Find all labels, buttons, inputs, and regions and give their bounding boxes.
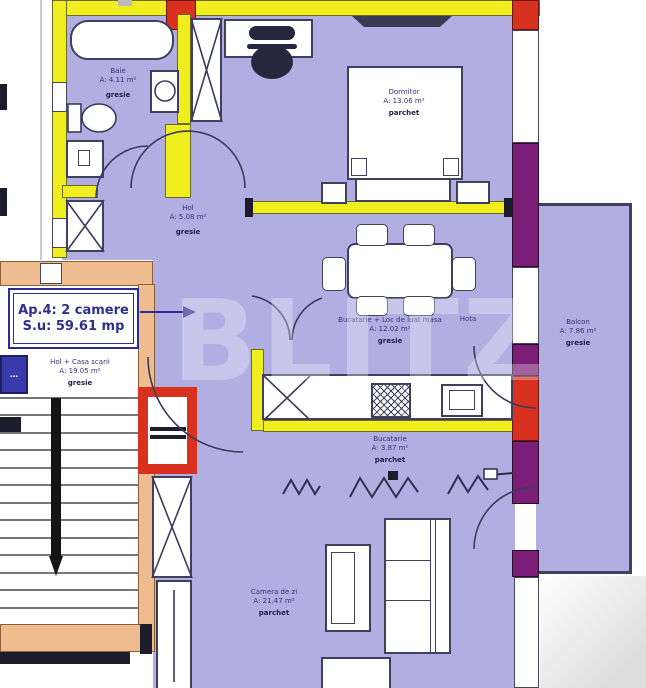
room-area: A: 4.11 m² (100, 76, 137, 85)
room-name: Camera de zi (251, 588, 297, 597)
toilet-icon (82, 104, 116, 132)
room-name: Baie (110, 67, 125, 76)
room-name: Bucatarie (373, 435, 407, 444)
door-arc-icon (252, 296, 290, 340)
room-name: Dormitor (388, 88, 419, 97)
stairs-icon (0, 398, 138, 608)
washer-drum (155, 81, 175, 101)
room-label-bucatarie: Bucatarie A: 3.87 m² parchet (352, 435, 428, 465)
toilet-tank (68, 104, 81, 132)
adjacent-apartment-label: … (0, 355, 28, 394)
room-label-dormitor: Dormitor A: 13.06 m² parchet (364, 88, 444, 118)
adjacent-apartment-text: … (10, 370, 18, 379)
room-area: A: 12.02 m² (369, 325, 410, 334)
door-arc-icon (474, 346, 536, 408)
room-label-bucatarie-dining: Bucatarie + Loc de luat masa A: 12.02 m²… (328, 316, 452, 346)
room-area: A: 5.08 m² (170, 213, 207, 222)
room-name: Balcon (566, 318, 590, 327)
door-arc-icon (131, 131, 245, 188)
room-name: Hol (182, 204, 194, 213)
shaft-x-lines (191, 18, 222, 122)
room-area: A: 3.87 m² (372, 444, 409, 453)
room-area: A: 7.86 m² (560, 327, 597, 336)
room-label-baie: Baie A: 4.11 m² gresie (88, 67, 148, 100)
shaft-x-lines (152, 476, 192, 578)
room-label-hol: Hol A: 5.08 m² gresie (158, 204, 218, 237)
office-chair-icon (247, 26, 297, 79)
room-area: A: 19.05 m² (59, 367, 100, 376)
room-label-casa-scarii: Hol + Casa scarii A: 19.05 m² gresie (28, 358, 132, 388)
radiator-valve (484, 469, 497, 479)
room-floor: gresie (68, 379, 93, 388)
room-label-balcon: Balcon A: 7.86 m² gresie (548, 318, 608, 348)
room-area: A: 21.47 m² (253, 597, 294, 606)
sink-x-lines (264, 376, 310, 420)
apartment-pointer-arrow (140, 306, 196, 318)
apartment-title-line1: Ap.4: 2 camere (18, 303, 129, 319)
shaft-x-lines (66, 200, 104, 252)
room-floor: gresie (106, 91, 131, 100)
floor-plan-canvas: Baie A: 4.11 m² gresie Dormitor A: 13.06… (0, 0, 646, 688)
room-area: A: 13.06 m² (383, 97, 424, 106)
hota-text: Hota (460, 315, 477, 324)
room-floor: parchet (259, 609, 289, 618)
apartment-title-box: Ap.4: 2 camere S.u: 59.61 mp (8, 288, 139, 349)
hota-label: Hota (450, 315, 486, 324)
door-arc-icon (148, 357, 243, 452)
room-floor: parchet (389, 109, 419, 118)
room-floor: gresie (176, 228, 201, 237)
room-name: Bucatarie + Loc de luat masa (338, 316, 442, 325)
apartment-title-line2: S.u: 59.61 mp (23, 319, 125, 335)
room-name: Hol + Casa scarii (50, 358, 110, 367)
door-arc-icon (474, 487, 536, 549)
radiator-icon (283, 473, 513, 497)
stair-direction-line (49, 398, 63, 576)
room-floor: gresie (566, 339, 591, 348)
room-floor: gresie (378, 337, 403, 346)
door-arc-icon (292, 298, 322, 340)
room-label-camera-de-zi: Camera de zi A: 21.47 m² parchet (233, 588, 315, 618)
room-floor: parchet (375, 456, 405, 465)
door-arc-icon (96, 146, 148, 198)
